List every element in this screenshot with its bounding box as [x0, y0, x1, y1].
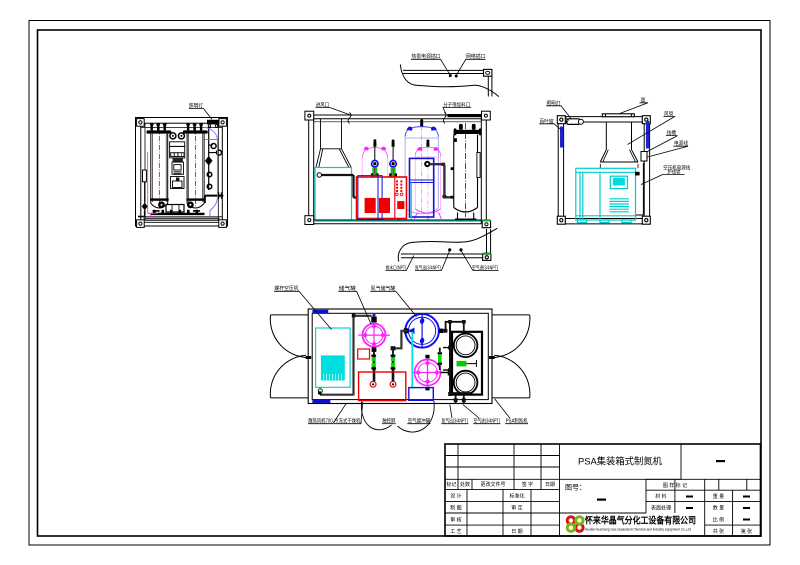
svg-text:更改文件号: 更改文件号	[480, 481, 505, 488]
svg-text:日期: 日期	[545, 482, 555, 488]
svg-text:表面处理: 表面处理	[651, 505, 671, 512]
svg-text:审 定: 审 定	[511, 505, 522, 512]
svg-text:重 量: 重 量	[713, 493, 724, 500]
svg-text:图 样 标 记: 图 样 标 记	[663, 482, 687, 489]
svg-text:标记: 标记	[446, 481, 456, 488]
svg-text:审 核: 审 核	[450, 517, 461, 524]
svg-text:处数: 处数	[460, 481, 470, 488]
svg-text:日 期: 日 期	[511, 529, 522, 535]
svg-text:签 字: 签 字	[522, 481, 533, 488]
svg-text:制 图: 制 图	[450, 505, 461, 512]
svg-text:比 例: 比 例	[713, 517, 724, 524]
svg-text:Huailai huachang Gas separated: Huailai huachang Gas separated Chemical …	[585, 528, 691, 532]
svg-text:第 张: 第 张	[741, 528, 752, 535]
svg-text:数 量: 数 量	[713, 505, 724, 512]
svg-text:设 计: 设 计	[450, 493, 461, 500]
svg-text:材 料: 材 料	[655, 493, 666, 500]
svg-text:怀来华晶气分化工设备有限公司: 怀来华晶气分化工设备有限公司	[585, 515, 696, 526]
svg-text:PSA集装箱式制氮机: PSA集装箱式制氮机	[578, 456, 662, 468]
svg-text:共 张: 共 张	[713, 528, 724, 535]
svg-text:标准化: 标准化	[509, 493, 524, 500]
svg-text:图号：: 图号：	[565, 484, 586, 492]
svg-text:工 艺: 工 艺	[450, 529, 461, 535]
